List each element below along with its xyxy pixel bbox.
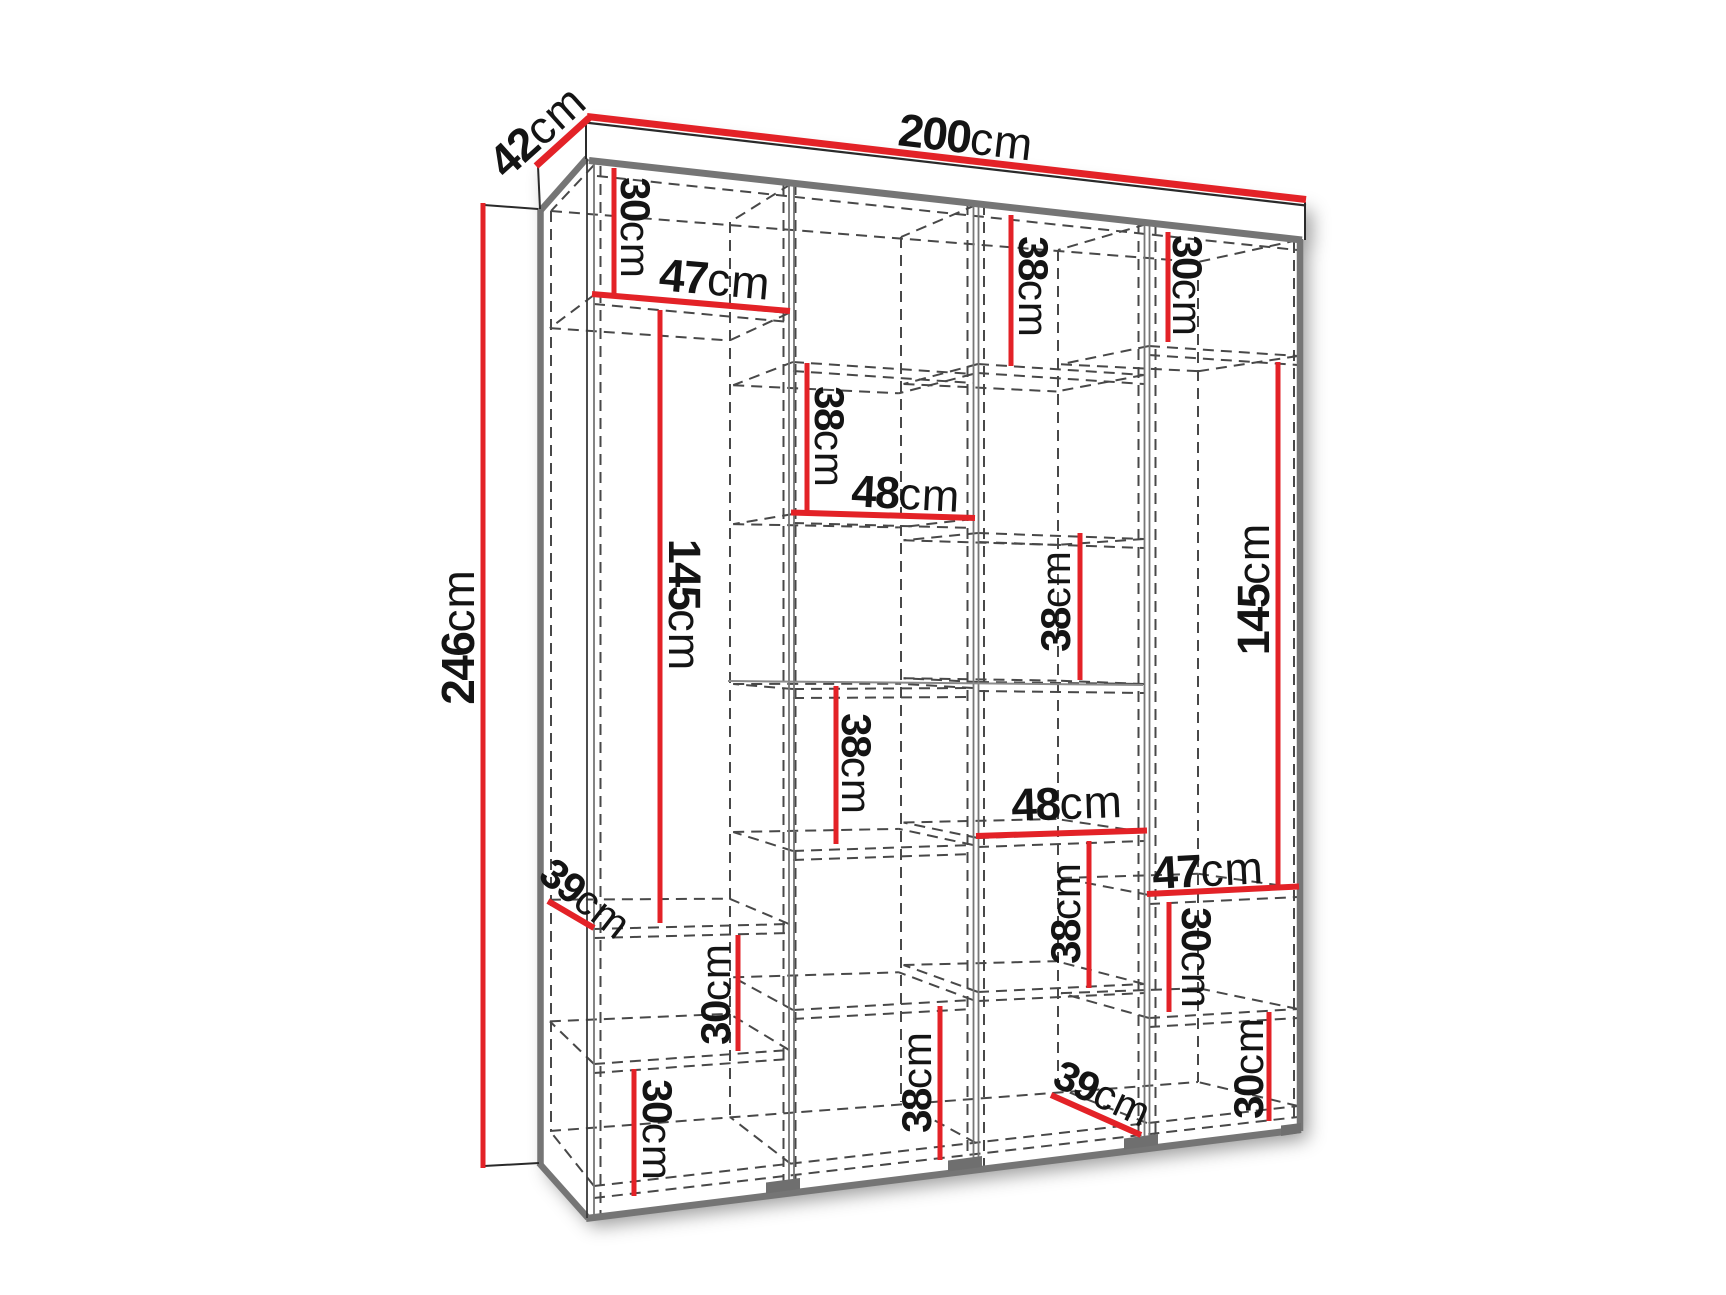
svg-text:48cm: 48cm (1010, 775, 1123, 831)
svg-text:246cm: 246cm (432, 569, 484, 705)
svg-text:30cm: 30cm (1225, 1017, 1272, 1119)
svg-text:47cm: 47cm (657, 248, 773, 310)
svg-text:145cm: 145cm (1228, 523, 1279, 656)
svg-text:38cm: 38cm (807, 386, 854, 488)
svg-text:38cm: 38cm (834, 713, 881, 815)
svg-text:30cm: 30cm (692, 943, 739, 1045)
svg-text:38cm: 38cm (1042, 862, 1089, 964)
svg-text:30cm: 30cm (613, 177, 660, 279)
svg-text:38cm: 38cm (1032, 550, 1079, 652)
svg-text:30cm: 30cm (1165, 235, 1212, 337)
svg-text:30cm: 30cm (1174, 907, 1221, 1009)
svg-text:48cm: 48cm (850, 465, 962, 522)
svg-text:30cm: 30cm (635, 1079, 682, 1181)
svg-text:38cm: 38cm (893, 1031, 940, 1133)
svg-text:47cm: 47cm (1151, 841, 1265, 899)
svg-text:38cm: 38cm (1011, 236, 1058, 338)
svg-text:145cm: 145cm (660, 539, 711, 672)
